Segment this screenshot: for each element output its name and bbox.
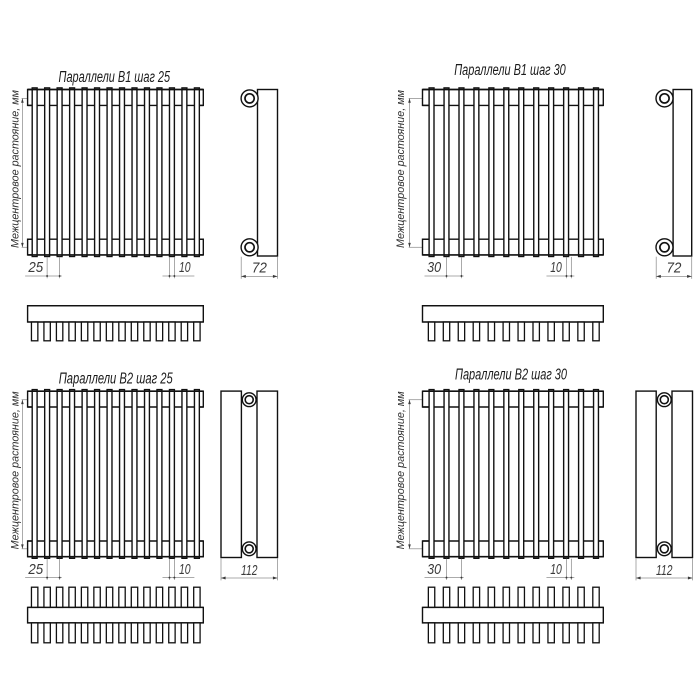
svg-text:25: 25 <box>27 259 43 276</box>
svg-text:Межцентровое растояние, мм: Межцентровое растояние, мм <box>395 90 407 248</box>
svg-text:10: 10 <box>550 561 562 578</box>
svg-text:112: 112 <box>241 562 258 579</box>
svg-text:72: 72 <box>252 260 268 277</box>
svg-text:10: 10 <box>550 259 562 276</box>
svg-text:Параллели В1 шаг 25: Параллели В1 шаг 25 <box>59 69 171 86</box>
svg-text:Межцентровое растояние, мм: Межцентровое растояние, мм <box>9 391 21 549</box>
svg-text:30: 30 <box>427 561 442 578</box>
svg-text:112: 112 <box>656 562 673 579</box>
svg-text:Параллели В2 шаг 25: Параллели В2 шаг 25 <box>59 370 173 387</box>
svg-text:Параллели В2 шаг 30: Параллели В2 шаг 30 <box>455 366 567 383</box>
svg-text:10: 10 <box>179 259 191 276</box>
svg-text:Межцентровое растояние, мм: Межцентровое растояние, мм <box>395 391 407 549</box>
svg-text:10: 10 <box>179 561 191 578</box>
svg-text:30: 30 <box>427 259 442 276</box>
svg-text:Межцентровое растояние, мм: Межцентровое растояние, мм <box>9 90 21 248</box>
svg-text:Параллели В1 шаг 30: Параллели В1 шаг 30 <box>454 62 566 79</box>
svg-text:25: 25 <box>27 561 43 578</box>
svg-text:72: 72 <box>666 260 682 277</box>
